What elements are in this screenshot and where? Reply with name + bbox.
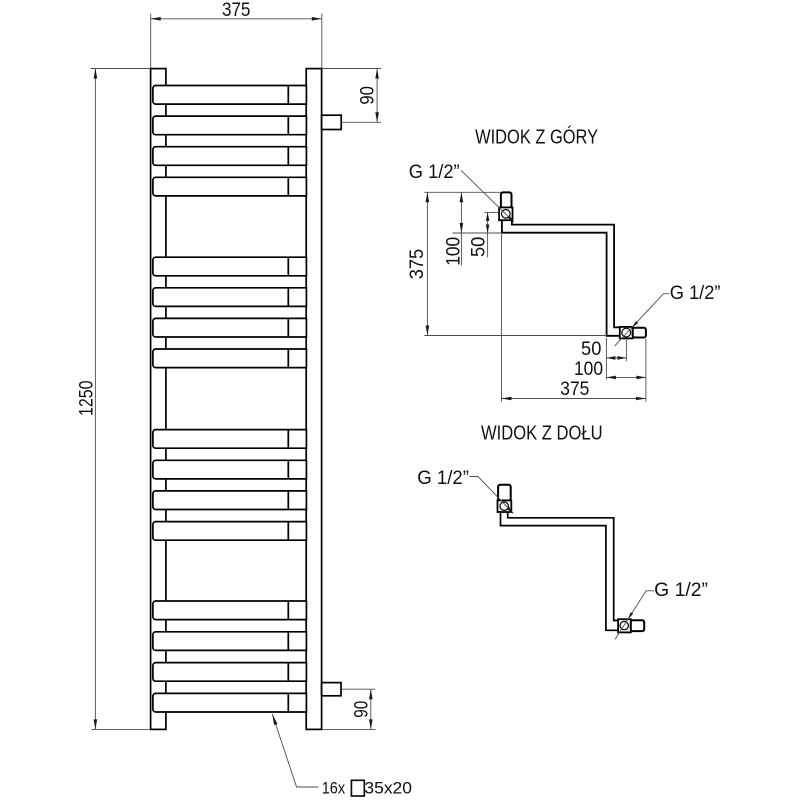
svg-text:90: 90 — [352, 701, 373, 718]
svg-text:WIDOK Z GÓRY: WIDOK Z GÓRY — [475, 126, 598, 149]
svg-text:50: 50 — [581, 339, 601, 360]
svg-text:16x: 16x — [322, 779, 346, 798]
svg-text:G 1/2”: G 1/2” — [409, 162, 460, 183]
svg-text:50: 50 — [468, 237, 489, 257]
svg-text:100: 100 — [574, 359, 603, 380]
svg-text:375: 375 — [560, 379, 589, 400]
svg-text:375: 375 — [407, 249, 428, 279]
svg-text:WIDOK Z DOŁU: WIDOK Z DOŁU — [481, 423, 603, 445]
svg-text:375: 375 — [222, 0, 251, 21]
svg-text:90: 90 — [357, 86, 378, 105]
svg-text:G 1/2”: G 1/2” — [417, 468, 469, 489]
svg-text:100: 100 — [443, 237, 464, 266]
svg-text:35x20: 35x20 — [364, 779, 412, 798]
svg-text:1250: 1250 — [77, 380, 98, 416]
svg-text:G 1/2”: G 1/2” — [670, 283, 721, 304]
svg-text:G 1/2”: G 1/2” — [654, 580, 708, 601]
